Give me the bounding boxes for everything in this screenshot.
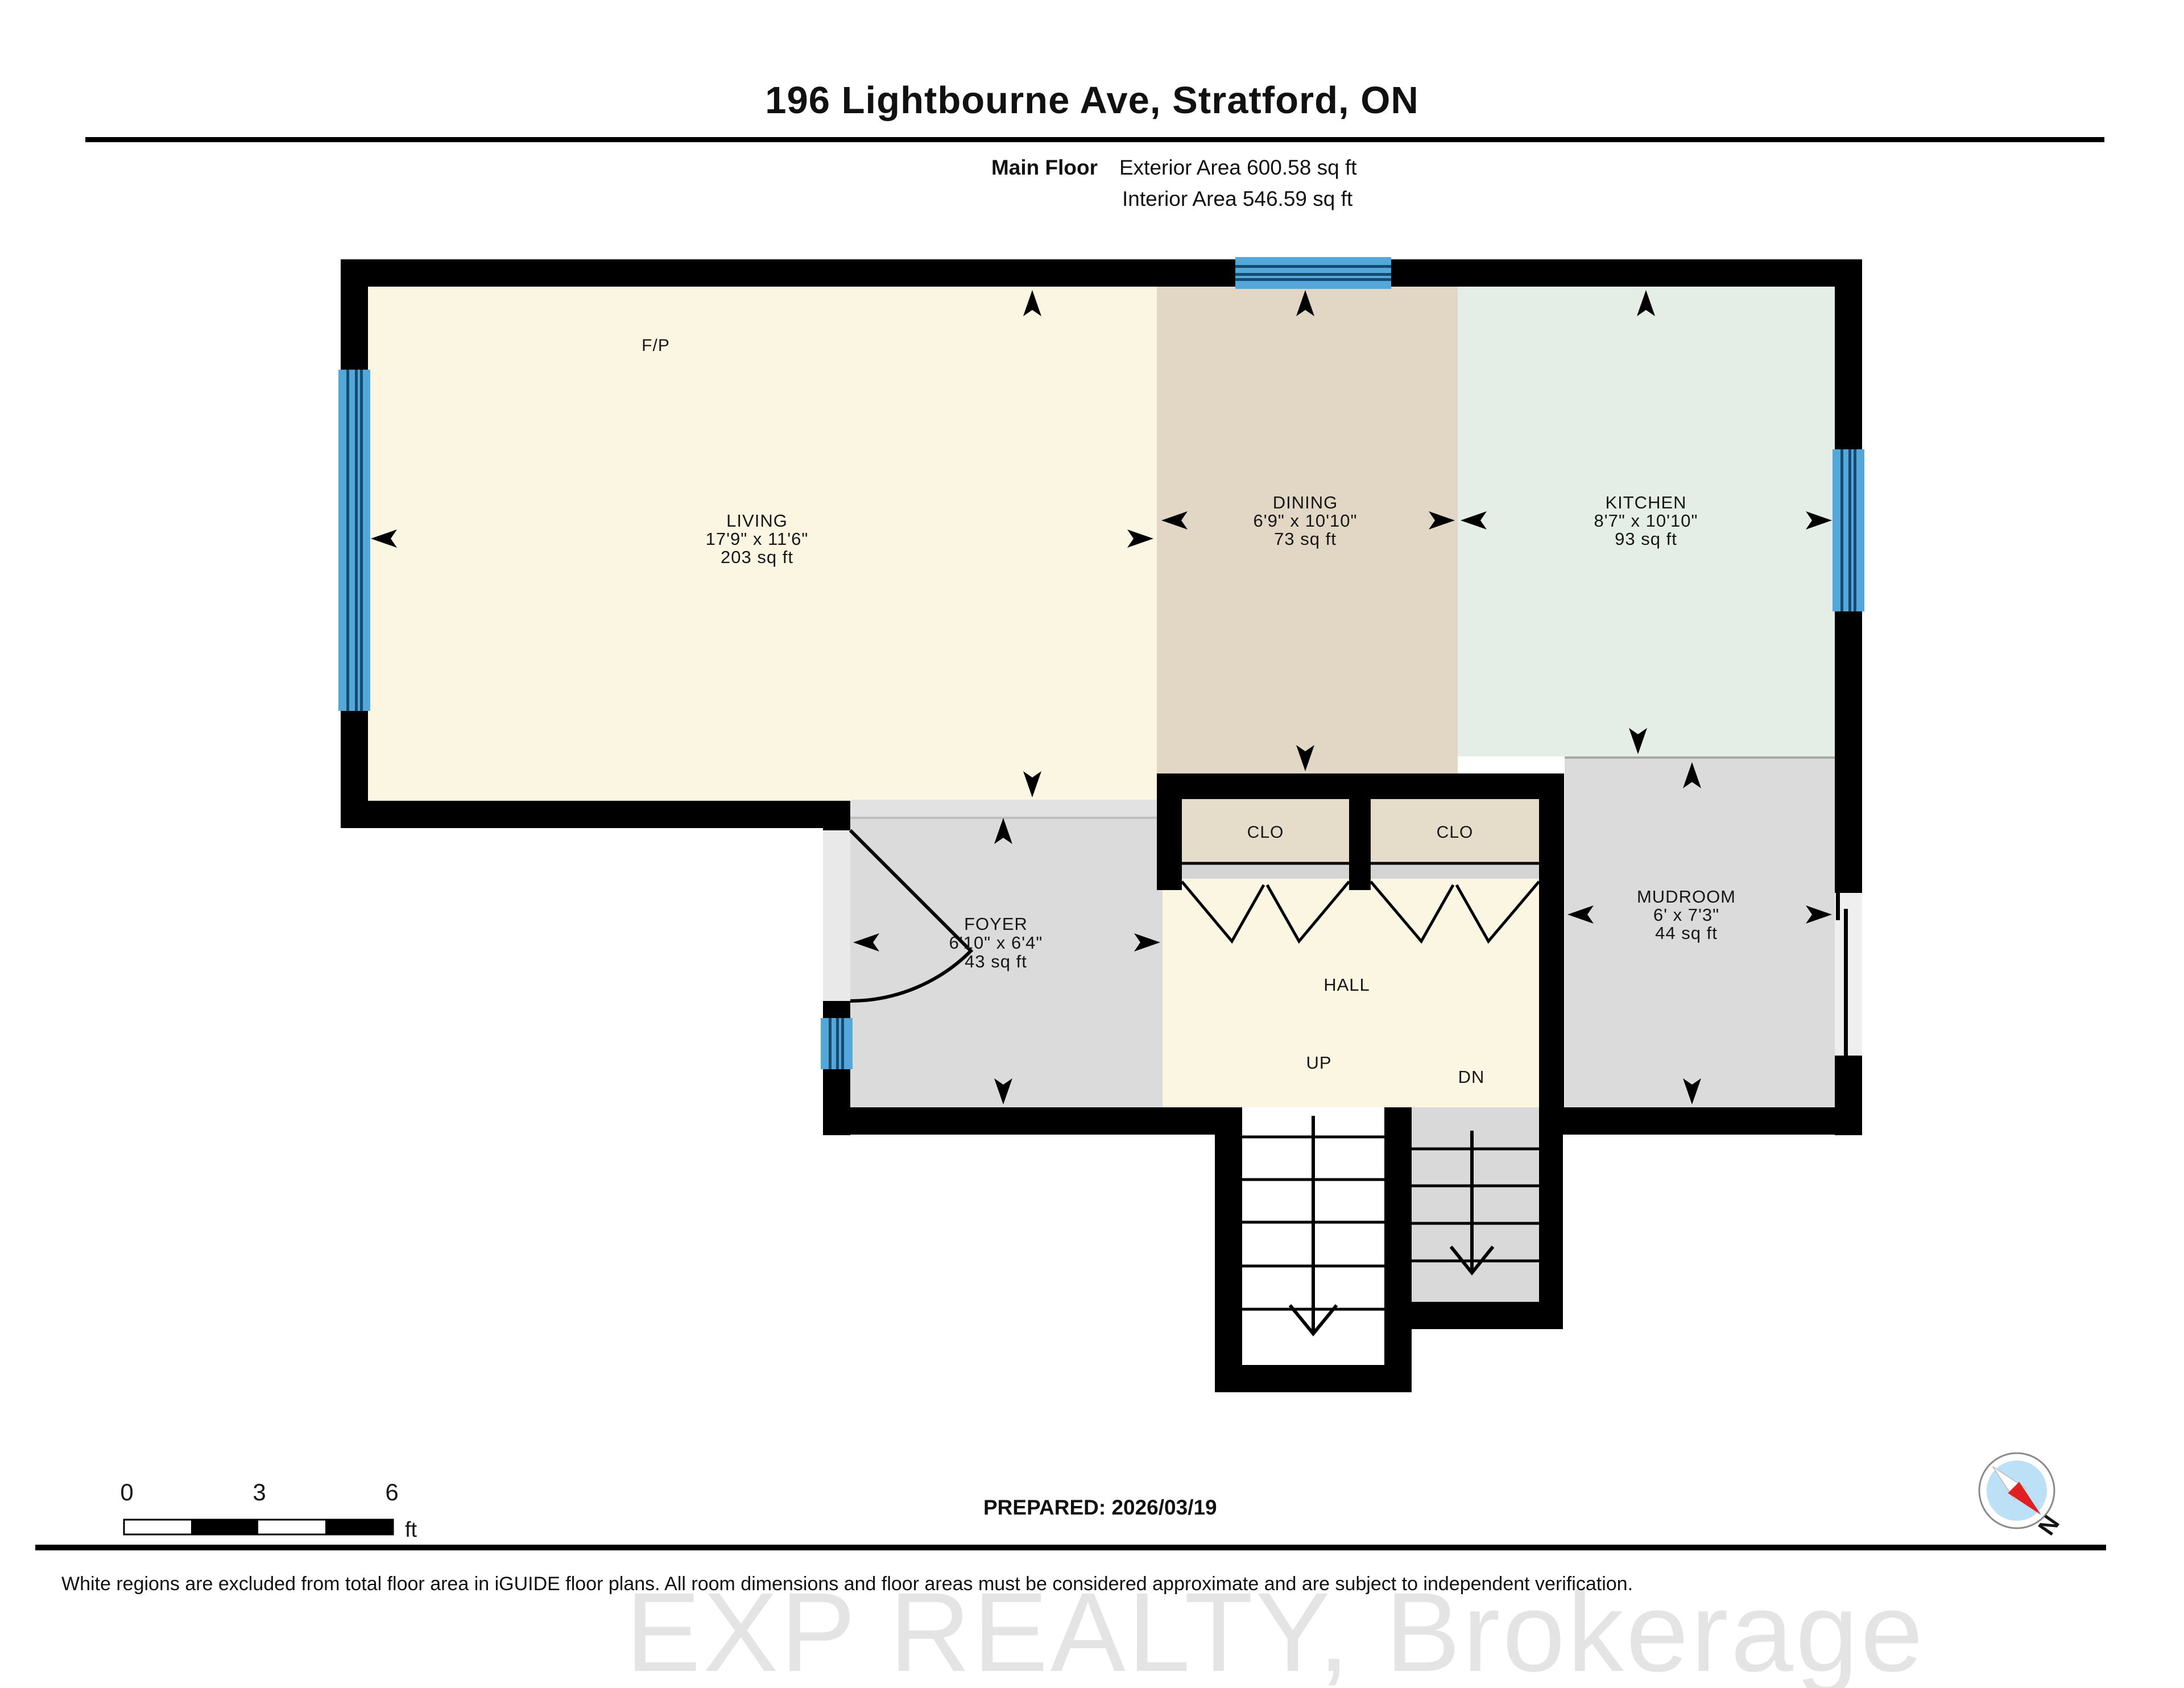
living-dims: 17'9" x 11'6" <box>706 529 809 549</box>
window-top-stripe <box>1235 273 1391 276</box>
mudroom-label: MUDROOM <box>1637 887 1736 907</box>
kitchen-dims: 8'7" x 10'10" <box>1594 511 1698 531</box>
wall-closet-mid <box>1349 799 1371 890</box>
entry-door-opening <box>823 830 850 1001</box>
wall-hall-mudroom <box>1539 773 1564 1135</box>
wall-top <box>341 259 1862 287</box>
scale-tick-3: 3 <box>253 1479 266 1505</box>
dining-area: 73 sq ft <box>1274 529 1337 549</box>
foyer-label: FOYER <box>964 914 1028 934</box>
hall-label: HALL <box>1323 975 1370 995</box>
window-left-stripe <box>346 370 349 711</box>
wall-stairs-up-left <box>1215 1135 1242 1392</box>
mudroom-dims: 6' x 7'3" <box>1653 905 1719 925</box>
wall-closet-left <box>1157 799 1182 890</box>
wall-stairs-mid <box>1384 1107 1412 1392</box>
scale-tick-6: 6 <box>385 1479 398 1505</box>
wall-closet-top <box>1157 773 1564 799</box>
foyer-area: 43 sq ft <box>965 951 1027 971</box>
window-foyer-stripe <box>841 1018 844 1069</box>
scale-bar: 0 3 6 ft <box>120 1479 417 1542</box>
closet2-label: CLO <box>1437 823 1474 842</box>
mudroom-sliding-door-panel <box>1836 835 1840 920</box>
stairs-down-label: DN <box>1458 1067 1485 1087</box>
wall-stairs-down-right <box>1539 1135 1563 1329</box>
scale-unit: ft <box>405 1518 417 1542</box>
wall-stairs-up-bottom <box>1215 1365 1412 1392</box>
stairs-up-label: UP <box>1306 1053 1331 1073</box>
wall-foyer-bottom <box>823 1107 1242 1135</box>
kitchen-area: 93 sq ft <box>1615 529 1677 549</box>
scale-bar-segment <box>191 1520 258 1534</box>
mudroom-sliding-door-panel <box>1844 909 1848 1060</box>
dining-label: DINING <box>1273 493 1338 512</box>
closet1-label: CLO <box>1247 823 1284 842</box>
compass: N <box>1979 1453 2065 1540</box>
disclaimer-text: White regions are excluded from total fl… <box>61 1573 2109 1595</box>
floorplan-page: 196 Lightbourne Ave, Stratford, ON Main … <box>0 0 2184 1688</box>
fireplace-label: F/P <box>642 336 670 355</box>
window-left <box>338 370 370 711</box>
living-foyer-opening <box>850 800 1157 819</box>
scale-bar-segment <box>325 1520 393 1534</box>
dining-dims: 6'9" x 10'10" <box>1253 511 1357 531</box>
living-label: LIVING <box>726 511 788 531</box>
window-top-stripe <box>1235 265 1391 268</box>
closet1-sill <box>1182 864 1349 879</box>
wall-mudroom-bottom <box>1539 1107 1862 1135</box>
window-top-stripe <box>1235 278 1391 281</box>
window-left-stripe <box>360 370 363 711</box>
foyer-dims: 6'10" x 6'4" <box>949 933 1043 953</box>
wall-living-bottom <box>341 801 850 828</box>
mudroom-area: 44 sq ft <box>1655 923 1718 943</box>
window-right-stripe <box>1848 449 1851 611</box>
scale-tick-0: 0 <box>120 1479 133 1505</box>
living-area: 203 sq ft <box>721 547 793 567</box>
closet2-sill <box>1371 864 1539 879</box>
window-right-stripe <box>1840 449 1843 611</box>
window-left-stripe <box>355 370 358 711</box>
window-foyer-stripe <box>836 1018 839 1069</box>
kitchen-label: KITCHEN <box>1605 493 1686 512</box>
stairs-down-treads <box>1412 1107 1539 1302</box>
floorplan-drawing: F/P LIVING 17'9" x 11'6" 203 sq ft DININ… <box>0 0 2184 1688</box>
window-right-stripe <box>1854 449 1856 611</box>
window-foyer-stripe <box>829 1018 832 1069</box>
wall-stairs-down-bottom <box>1384 1302 1563 1329</box>
